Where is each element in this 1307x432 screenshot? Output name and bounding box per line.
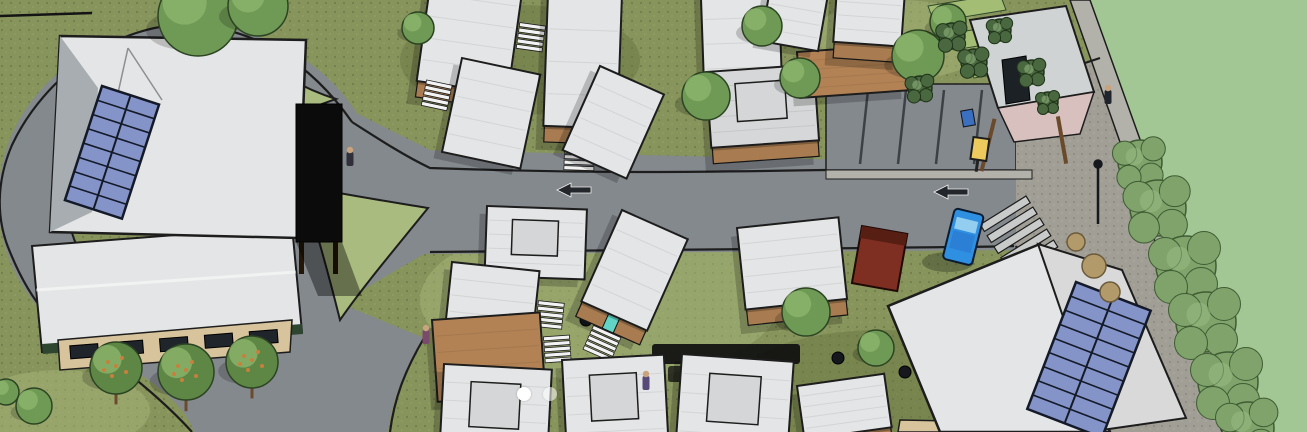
- house-steps: [543, 335, 571, 363]
- conifer-tree: [936, 21, 967, 52]
- pavilion-canopy: [296, 104, 342, 242]
- conifer-tree: [958, 47, 989, 78]
- evergreen-tree: [1123, 176, 1190, 243]
- conifer-tree: [986, 17, 1012, 43]
- conifer-tree: [1036, 91, 1060, 115]
- person: [347, 147, 354, 166]
- evergreen-tree: [1169, 288, 1241, 360]
- carousel-dot-active[interactable]: [517, 387, 531, 401]
- shrub-tree: [1067, 233, 1085, 251]
- red-shed: [852, 226, 907, 291]
- shrub-tree: [1082, 254, 1106, 278]
- person: [1105, 85, 1112, 104]
- carousel-dot-inactive[interactable]: [543, 387, 557, 401]
- round-tree: [0, 379, 19, 405]
- rendering-carousel-slide: [0, 0, 1307, 432]
- shrub-tree: [1100, 282, 1120, 302]
- tiny-house: [555, 355, 669, 432]
- recycling-bin: [961, 109, 976, 127]
- parking-sidewalk: [826, 170, 1032, 179]
- conifer-tree: [1017, 58, 1046, 87]
- conifer-tree: [905, 74, 934, 103]
- carousel-dots: [517, 387, 557, 401]
- person: [423, 325, 430, 344]
- person: [643, 371, 650, 390]
- tiny-house: [668, 354, 794, 432]
- site-rendering: [0, 0, 1307, 432]
